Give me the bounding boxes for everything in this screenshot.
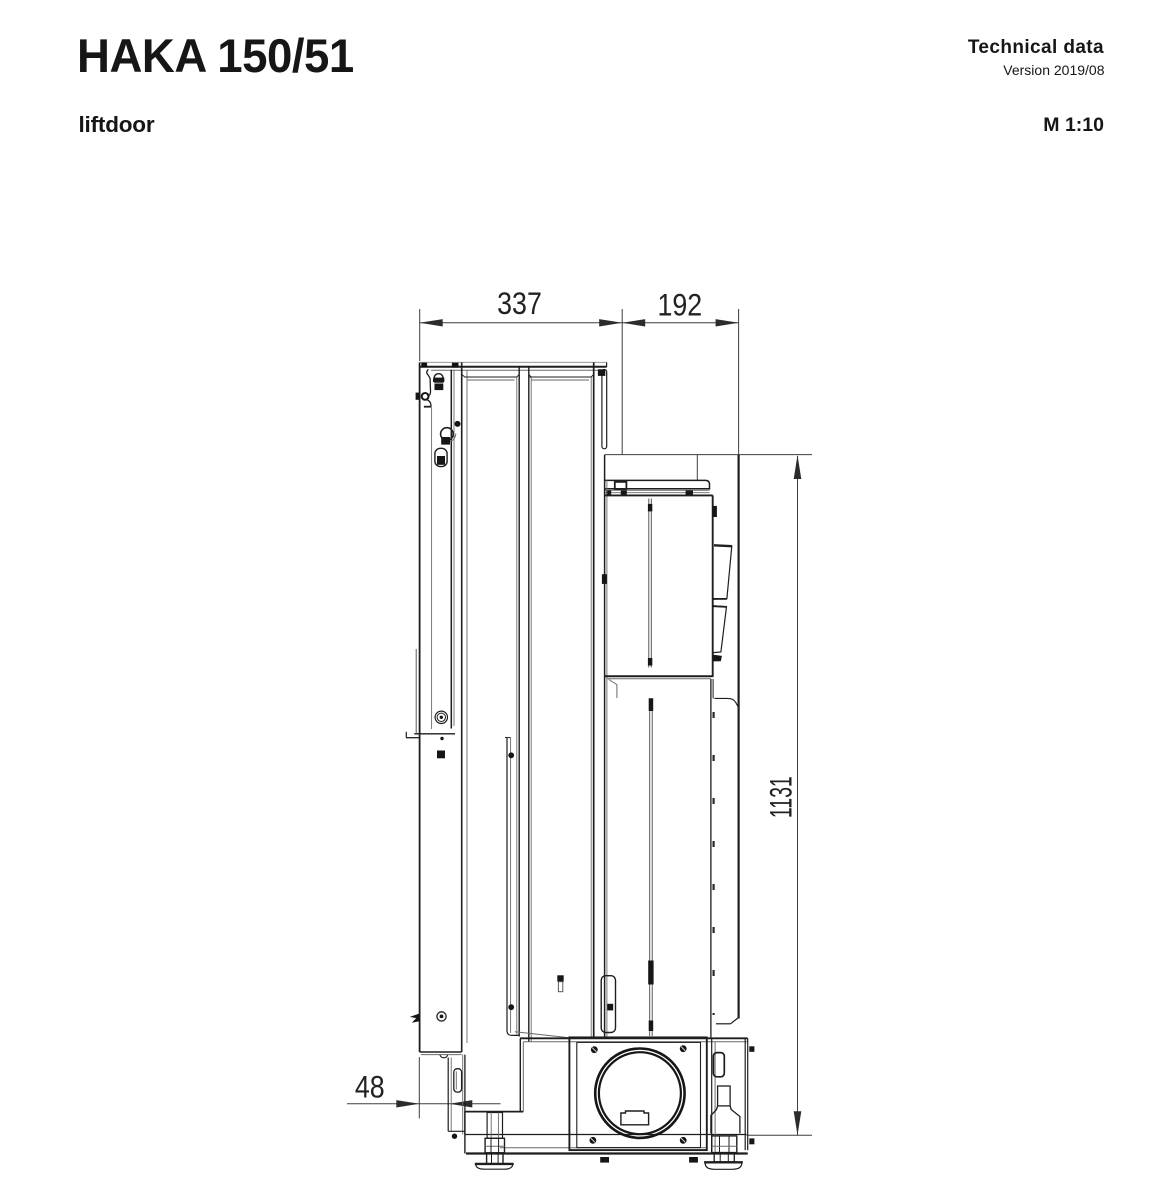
svg-text:337: 337 <box>497 287 542 321</box>
svg-text:1131: 1131 <box>763 776 799 818</box>
svg-text:192: 192 <box>657 288 702 322</box>
svg-text:48: 48 <box>355 1071 385 1105</box>
